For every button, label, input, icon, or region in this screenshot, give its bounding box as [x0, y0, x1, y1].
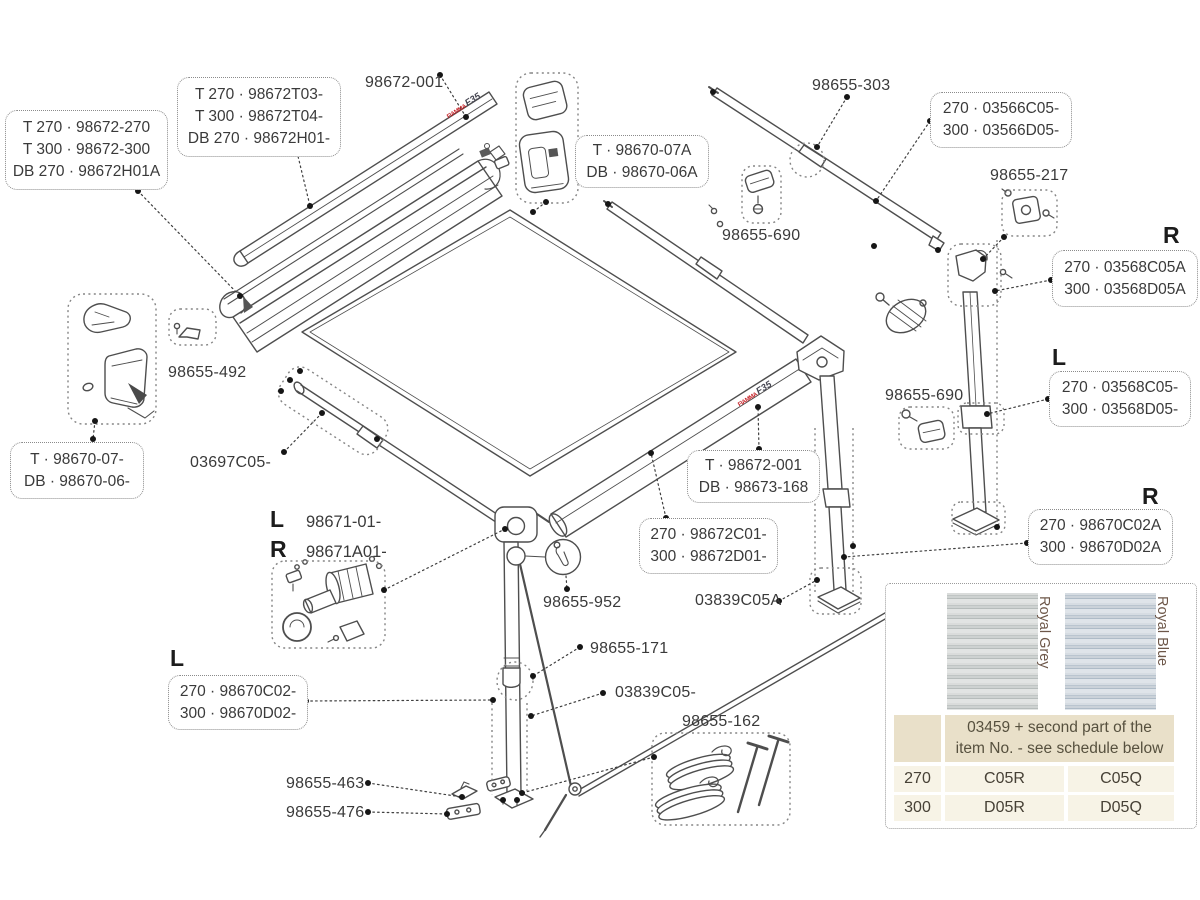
- fabric-swatch-royal-blue: [1065, 593, 1156, 710]
- part-code: 300 · 03568D05-: [1062, 399, 1178, 421]
- part-code: T · 98672-001: [705, 455, 802, 477]
- end-cap-parts-left: [82, 304, 154, 418]
- part-box-leg-r: 270 · 98670C02A300 · 98670D02A: [1028, 509, 1173, 565]
- part-code: T · 98670-07-: [30, 449, 124, 471]
- section-letter-r-top: R: [1163, 222, 1180, 249]
- schedule-cell-c05r: C05R: [945, 766, 1064, 792]
- part-code: 270 · 03568C05A: [1064, 257, 1186, 279]
- section-letter-r-bottom: R: [1142, 483, 1159, 510]
- spool-parts: [283, 557, 381, 642]
- schedule-cell-d05r: D05R: [945, 795, 1064, 821]
- part-box-leg-l: 270 · 98670C02-300 · 98670D02-: [168, 675, 308, 730]
- part-label-03839C05: 03839C05-: [615, 684, 696, 702]
- part-label-98672-001: 98672-001: [365, 74, 443, 92]
- part-box-leg-upper-r: 270 · 03568C05A300 · 03568D05A: [1052, 250, 1198, 307]
- part-code: T 270 · 98672T03-: [195, 84, 323, 106]
- part-label-98655-492: 98655-492: [168, 364, 246, 382]
- legend-letter-r: R: [270, 536, 294, 563]
- schedule-size-300: 300: [894, 795, 941, 821]
- part-code: DB · 98670-06A: [586, 162, 697, 184]
- section-letter-l-right: L: [1052, 344, 1066, 371]
- part-label-03839C05A: 03839C05A: [695, 592, 781, 610]
- part-box-roller-t: T · 98672-001DB · 98673-168: [687, 450, 820, 503]
- gear-assembly: [876, 293, 932, 340]
- part-box-leg-upper-l: 270 · 03568C05-300 · 03568D05-: [1049, 371, 1191, 427]
- part-box-lead-bar-alt: T 270 · 98672T03-T 300 · 98672T04-DB 270…: [177, 77, 341, 157]
- knob-98655-690-right: [902, 410, 946, 443]
- schedule-cell-d05q: D05Q: [1068, 795, 1174, 821]
- part-box-endcap-b: T · 98670-07-DB · 98670-06-: [10, 442, 144, 499]
- part-code: T 300 · 98672-300: [23, 139, 150, 161]
- part-label-98655-476: 98655-476: [286, 804, 364, 822]
- part-code: 300 · 03568D05A: [1064, 279, 1186, 301]
- part-code: DB · 98673-168: [699, 477, 808, 499]
- part-code: T · 98670-07A: [593, 140, 692, 162]
- bracket-98655-217: [1002, 189, 1054, 224]
- knob-98655-690-top: [744, 169, 775, 213]
- part-code: T 300 · 98672T04-: [195, 106, 323, 128]
- legend-letter-l: L: [270, 506, 294, 533]
- part-box-endcap-a: T · 98670-07ADB · 98670-06A: [575, 135, 709, 188]
- part-code: 300 · 98670D02-: [180, 703, 296, 725]
- part-code: 300 · 98672D01-: [650, 546, 766, 568]
- part-label-98655-463: 98655-463: [286, 775, 364, 793]
- part-box-support-arm: 270 · 03566C05-300 · 03566D05-: [930, 92, 1072, 148]
- part-box-lead-bar-set: T 270 · 98672-270T 300 · 98672-300DB 270…: [5, 110, 168, 190]
- schedule-cell-c05q: C05Q: [1068, 766, 1174, 792]
- legend-code-r: 98671A01-: [306, 543, 387, 562]
- part-box-roller-lr: 270 · 98672C01-300 · 98672D01-: [639, 518, 778, 574]
- part-code: 270 · 98672C01-: [650, 524, 766, 546]
- bracket-98655-492: [174, 323, 200, 339]
- legend-code-l: 98671-01-: [306, 513, 381, 532]
- section-letter-l-left: L: [170, 645, 184, 672]
- schedule-corner-cell: [894, 715, 941, 762]
- part-label-98655-690-top: 98655-690: [722, 227, 800, 245]
- part-code: 270 · 98670C02A: [1040, 515, 1162, 537]
- schedule-header-cell: 03459 + second part of the item No. - se…: [945, 715, 1174, 762]
- fabric-color-panel: Royal Grey Royal Blue 03459 + second par…: [885, 583, 1197, 829]
- part-code: 300 · 03566D05-: [943, 120, 1059, 142]
- fabric-swatch-label-blue: Royal Blue: [1154, 596, 1170, 711]
- parts-diagram-page: L 98671-01- R 98671A01- FIAMMA F35 FIAMM…: [0, 0, 1200, 900]
- legend-row-left: L 98671-01-: [270, 506, 387, 536]
- part-code: 270 · 98670C02-: [180, 681, 296, 703]
- schedule-size-270: 270: [894, 766, 941, 792]
- part-label-98655-690-right: 98655-690: [885, 387, 963, 405]
- part-label-98655-217: 98655-217: [990, 167, 1068, 185]
- part-code: DB 270 · 98672H01-: [188, 128, 330, 150]
- fabric-swatch-royal-grey: [947, 593, 1038, 710]
- part-label-98655-171: 98655-171: [590, 640, 668, 658]
- fabric-swatch-label-grey: Royal Grey: [1036, 596, 1052, 711]
- cords-and-pegs: [653, 736, 788, 825]
- part-code: DB · 98670-06-: [24, 471, 130, 493]
- legend-row-right: R 98671A01-: [270, 536, 387, 566]
- end-cap-parts-top: [518, 80, 570, 194]
- lr-part-legend: L 98671-01- R 98671A01-: [270, 506, 387, 566]
- part-code: 300 · 98670D02A: [1040, 537, 1162, 559]
- part-label-98655-303: 98655-303: [812, 77, 890, 95]
- part-label-98655-162: 98655-162: [682, 713, 760, 731]
- part-label-98655-952: 98655-952: [543, 594, 621, 612]
- part-code: T 270 · 98672-270: [23, 117, 150, 139]
- part-label-03697C05: 03697C05-: [190, 454, 271, 472]
- part-code: DB 270 · 98672H01A: [13, 161, 160, 183]
- part-code: 270 · 03568C05-: [1062, 377, 1178, 399]
- part-code: 270 · 03566C05-: [943, 98, 1059, 120]
